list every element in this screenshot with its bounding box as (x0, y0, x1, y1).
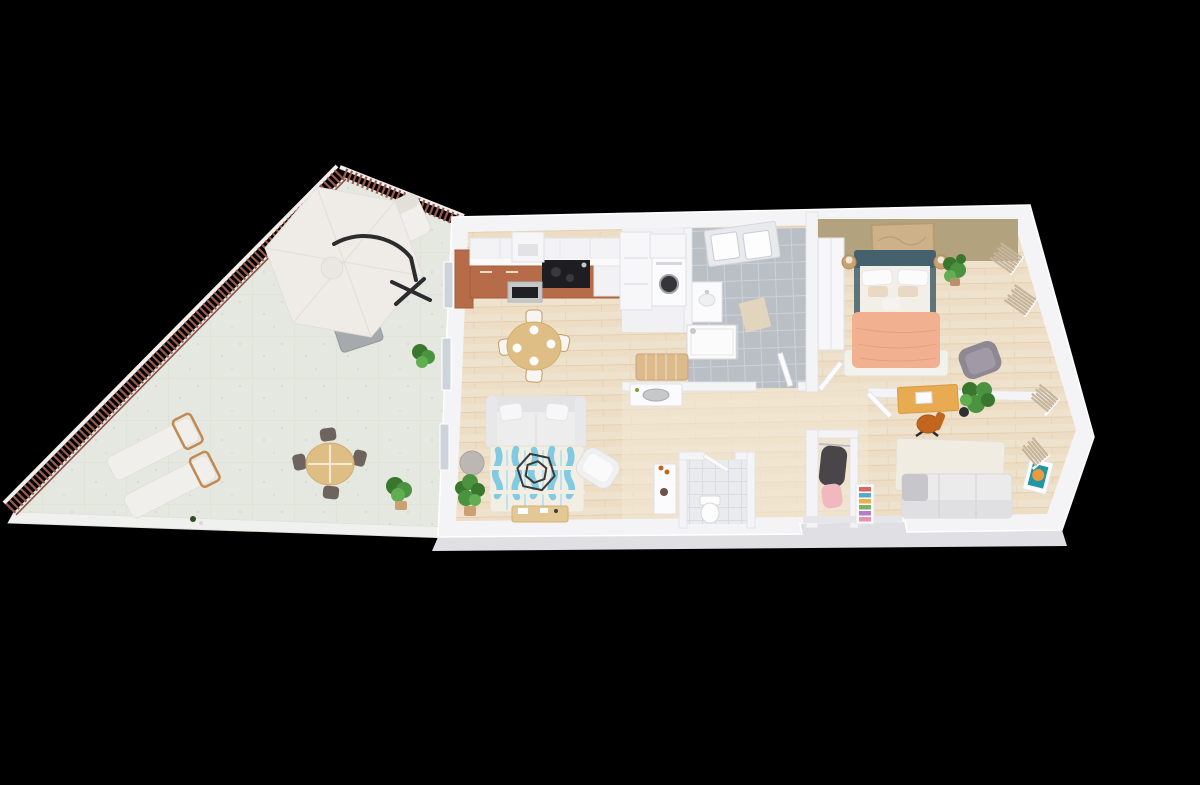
book-spine (859, 511, 871, 516)
headboard (854, 250, 936, 268)
lamp-left (846, 257, 853, 264)
upper-cabinets (470, 238, 620, 258)
book-spine (859, 505, 871, 510)
place-setting-3 (547, 340, 556, 349)
wall-bath-bedroom (806, 212, 818, 392)
wine-bottle (190, 516, 196, 522)
book-spine (859, 517, 871, 522)
plant-pot (464, 506, 476, 516)
wc-top-wall-a (679, 452, 705, 460)
slat-bench (636, 354, 688, 380)
washer-controls (656, 262, 682, 265)
vanity-faucet (705, 290, 709, 294)
shower-head (690, 328, 696, 334)
washer-door (660, 275, 678, 293)
skylight-pane-1 (711, 232, 740, 261)
wall-bath-hall-b (798, 382, 806, 391)
closet-top-wall (818, 430, 858, 438)
place-setting-2 (513, 344, 522, 353)
kitchen (455, 232, 652, 310)
laundry-nook (650, 234, 686, 306)
book-spine (859, 487, 871, 492)
floor-plan-svg: 3D isometric floor-plan render: one-bedr… (0, 0, 1200, 785)
desk (897, 384, 958, 413)
shower (687, 325, 737, 359)
wc (700, 496, 720, 523)
console-vase (660, 488, 668, 496)
sink-faucet (582, 263, 587, 268)
laundry-cabinet (650, 234, 686, 258)
laptop (916, 392, 933, 404)
terrace (4, 166, 464, 538)
sofa-pillow-1 (499, 403, 523, 422)
dishwasher-panel (594, 266, 620, 296)
render-canvas: 3D isometric floor-plan render: one-bedr… (0, 0, 1200, 785)
range-hood-vent (518, 244, 538, 256)
oven-window (512, 287, 538, 298)
metal-bowl (643, 389, 669, 401)
tall-unit-fridge (620, 232, 652, 310)
place-setting-4 (530, 357, 539, 366)
daybed (902, 474, 1012, 518)
wall-hall-closet (806, 430, 818, 528)
double-bed (852, 250, 940, 368)
hanging-coat (818, 445, 848, 487)
daybed-pad (902, 474, 928, 501)
toilet-bowl (701, 503, 719, 523)
bistro-chair-n (319, 427, 337, 442)
pillow-2 (898, 269, 929, 286)
palm-pot (959, 407, 969, 417)
bookshelf (856, 484, 874, 524)
pillow-4 (898, 286, 918, 297)
wc-left-wall (679, 452, 687, 528)
flower-console (654, 464, 676, 514)
burner-1 (551, 267, 561, 277)
media-sideboard (512, 506, 568, 522)
book-spine (859, 493, 871, 498)
wine-glass (199, 521, 203, 525)
bistro-chair-s (322, 485, 339, 500)
wc-right-wall (747, 452, 755, 528)
parasol-vent (321, 257, 343, 279)
sofa-pillow-2 (545, 403, 569, 421)
sofa (486, 396, 586, 448)
pouf (460, 451, 484, 475)
pillow-1 (862, 269, 893, 286)
burner-2 (566, 274, 574, 282)
vanity-sink (699, 294, 715, 306)
skylight-pane-2 (743, 230, 772, 259)
book-spine (859, 499, 871, 504)
pillow-3 (868, 286, 888, 297)
entrance-door-slab (803, 516, 902, 523)
bowl-accent (635, 388, 639, 392)
place-setting-1 (530, 326, 539, 335)
bowl-console (630, 384, 682, 406)
